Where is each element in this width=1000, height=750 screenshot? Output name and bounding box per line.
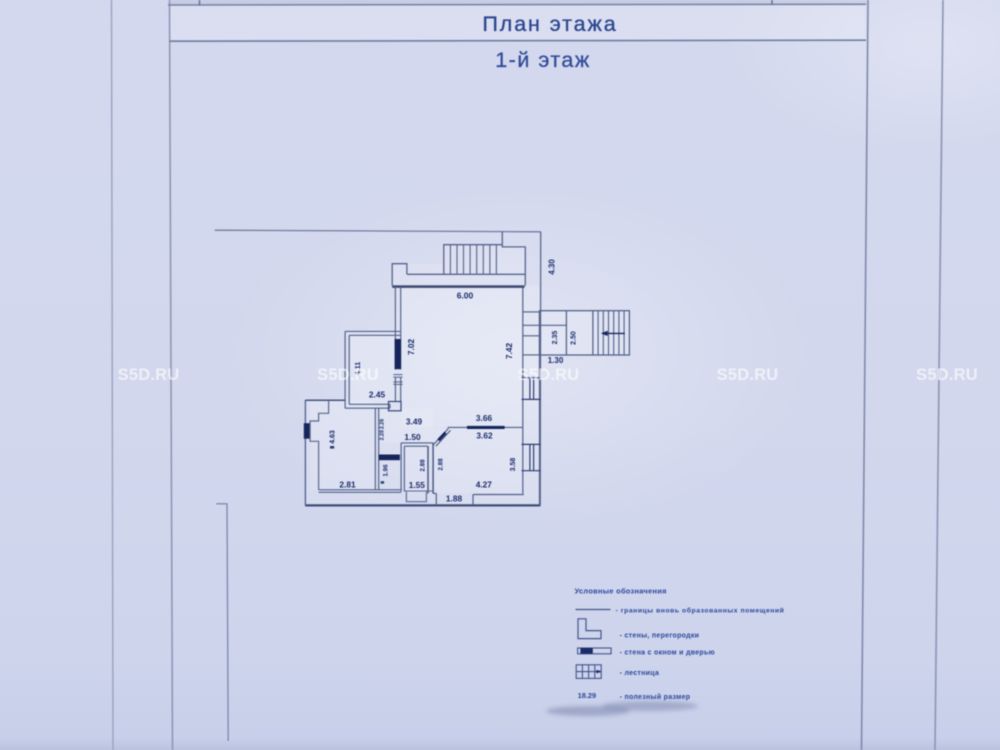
svg-text:3.62: 3.62 <box>476 431 493 441</box>
svg-text:2.35: 2.35 <box>552 331 559 345</box>
svg-text:3.49: 3.49 <box>406 417 423 427</box>
svg-text:- лестница: - лестница <box>620 670 660 677</box>
svg-text:S5D.RU: S5D.RU <box>118 366 180 384</box>
svg-text:1.96: 1.96 <box>382 464 389 477</box>
svg-text:4.30: 4.30 <box>547 259 556 275</box>
svg-text:6.00: 6.00 <box>457 291 474 301</box>
svg-text:2.28: 2.28 <box>379 430 385 440</box>
svg-text:2.88: 2.88 <box>438 458 445 471</box>
svg-text:4.27: 4.27 <box>476 480 493 490</box>
svg-text:- стена с окном и дверью: - стена с окном и дверью <box>620 650 715 657</box>
svg-text:1.30: 1.30 <box>548 356 564 365</box>
svg-text:Условные обозначения: Условные обозначения <box>575 587 667 596</box>
svg-text:- границы вновь образованных п: - границы вновь образованных помещений <box>616 607 785 615</box>
svg-text:S5D.RU: S5D.RU <box>916 366 978 384</box>
svg-text:План этажа: План этажа <box>482 12 617 36</box>
svg-text:7.42: 7.42 <box>504 343 514 360</box>
svg-text:1.50: 1.50 <box>404 432 421 442</box>
svg-text:2.45: 2.45 <box>369 390 386 400</box>
svg-text:2.88: 2.88 <box>420 459 427 472</box>
svg-text:- полезный размер: - полезный размер <box>620 693 691 701</box>
svg-text:S5D.RU: S5D.RU <box>717 366 779 384</box>
svg-text:2.26: 2.26 <box>379 419 385 429</box>
svg-text:S5D.RU: S5D.RU <box>518 366 580 384</box>
svg-text:7.02: 7.02 <box>406 339 416 356</box>
svg-text:- стены, перегородки: - стены, перегородки <box>620 633 700 640</box>
svg-text:1-й этаж: 1-й этаж <box>495 48 591 72</box>
svg-text:3.58: 3.58 <box>510 458 517 472</box>
svg-text:2.50: 2.50 <box>570 331 577 345</box>
svg-text:2.81: 2.81 <box>339 480 356 490</box>
svg-text:4.63: 4.63 <box>330 430 337 444</box>
svg-text:S5D.RU: S5D.RU <box>317 366 379 384</box>
svg-text:3.66: 3.66 <box>476 413 493 423</box>
svg-text:1.55: 1.55 <box>409 480 426 490</box>
svg-text:18.29: 18.29 <box>578 691 597 700</box>
svg-text:1.88: 1.88 <box>446 494 463 504</box>
